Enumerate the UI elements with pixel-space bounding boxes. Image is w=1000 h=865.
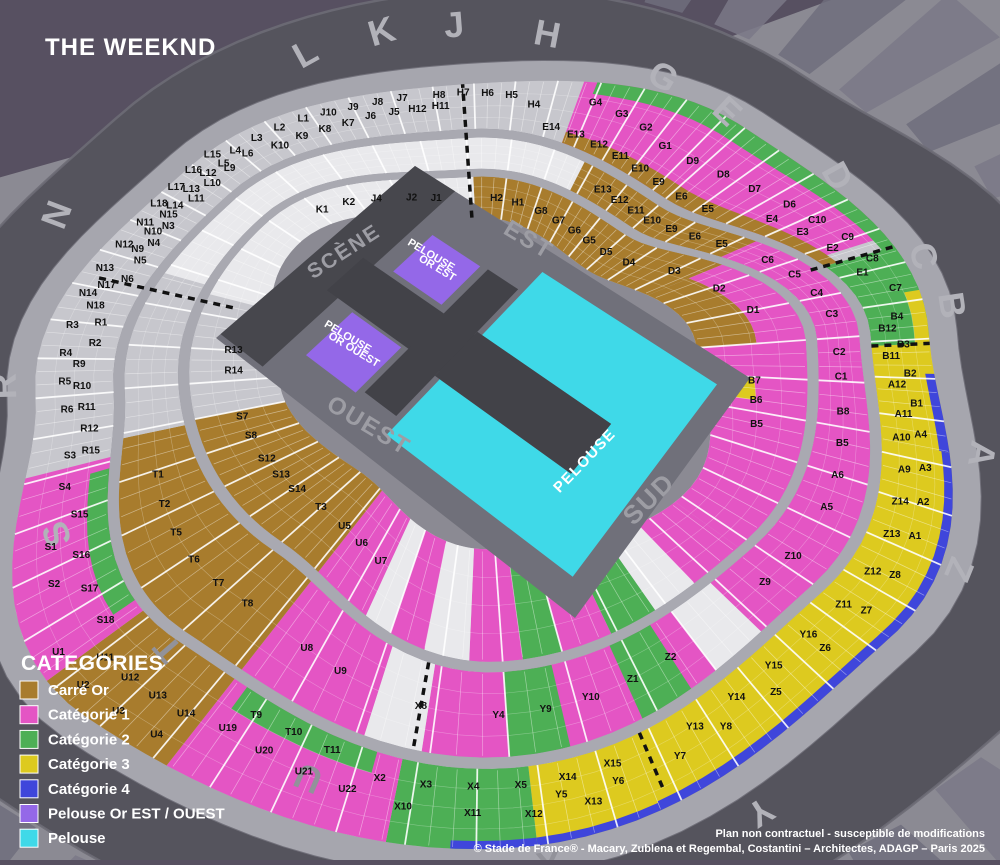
svg-text:D1: D1 xyxy=(747,305,760,316)
svg-text:B12: B12 xyxy=(878,324,897,335)
svg-text:U9: U9 xyxy=(334,666,347,677)
svg-text:K2: K2 xyxy=(342,197,355,208)
svg-text:L6: L6 xyxy=(242,149,254,160)
svg-text:L2: L2 xyxy=(274,123,286,134)
svg-text:X11: X11 xyxy=(464,808,482,819)
svg-text:Y9: Y9 xyxy=(539,704,552,715)
svg-text:E6: E6 xyxy=(689,231,702,242)
svg-text:G8: G8 xyxy=(534,206,548,217)
svg-text:X4: X4 xyxy=(467,781,480,792)
svg-text:T7: T7 xyxy=(213,578,225,589)
svg-text:N9: N9 xyxy=(131,244,144,255)
svg-text:H8: H8 xyxy=(433,90,446,101)
svg-text:E10: E10 xyxy=(631,164,649,175)
svg-text:Pelouse: Pelouse xyxy=(48,830,106,847)
svg-text:Z2: Z2 xyxy=(665,652,677,663)
svg-text:A11: A11 xyxy=(895,409,913,420)
svg-text:C7: C7 xyxy=(889,283,902,294)
svg-text:D9: D9 xyxy=(686,156,699,167)
svg-text:D8: D8 xyxy=(717,169,730,180)
svg-text:X5: X5 xyxy=(515,780,528,791)
svg-text:Y16: Y16 xyxy=(800,629,818,640)
svg-text:B5: B5 xyxy=(750,419,763,430)
svg-text:Z13: Z13 xyxy=(883,529,901,540)
svg-text:E1: E1 xyxy=(856,267,869,278)
svg-text:Y5: Y5 xyxy=(555,790,568,801)
svg-text:H11: H11 xyxy=(432,101,450,112)
svg-text:D2: D2 xyxy=(713,284,726,295)
svg-text:Y15: Y15 xyxy=(765,661,783,672)
svg-text:R10: R10 xyxy=(73,381,92,392)
svg-text:J9: J9 xyxy=(347,102,359,113)
svg-text:T3: T3 xyxy=(315,502,327,513)
svg-text:R12: R12 xyxy=(80,424,99,435)
svg-text:Z7: Z7 xyxy=(861,606,873,617)
svg-text:S12: S12 xyxy=(258,454,276,465)
svg-text:U7: U7 xyxy=(375,556,388,567)
svg-text:Z1: Z1 xyxy=(627,674,639,685)
svg-text:E2: E2 xyxy=(826,243,839,254)
svg-text:E5: E5 xyxy=(716,239,729,250)
svg-text:L14: L14 xyxy=(166,200,184,211)
svg-text:K1: K1 xyxy=(316,204,329,215)
svg-text:A12: A12 xyxy=(888,379,907,390)
svg-text:R4: R4 xyxy=(59,348,72,359)
svg-text:E13: E13 xyxy=(567,130,585,141)
svg-text:Y6: Y6 xyxy=(612,776,625,787)
svg-text:Catégorie 1: Catégorie 1 xyxy=(48,707,130,724)
svg-text:N5: N5 xyxy=(134,256,147,267)
svg-text:R3: R3 xyxy=(66,320,79,331)
svg-text:U6: U6 xyxy=(355,538,368,549)
svg-text:T1: T1 xyxy=(152,470,164,481)
svg-text:B2: B2 xyxy=(904,368,917,379)
svg-text:T9: T9 xyxy=(250,710,262,721)
svg-text:U19: U19 xyxy=(219,723,238,734)
svg-text:N18: N18 xyxy=(86,300,105,311)
svg-text:Z6: Z6 xyxy=(819,643,831,654)
svg-text:E9: E9 xyxy=(665,224,678,235)
svg-text:C5: C5 xyxy=(788,270,801,281)
svg-text:Y14: Y14 xyxy=(728,692,746,703)
svg-text:G7: G7 xyxy=(552,215,566,226)
svg-text:D7: D7 xyxy=(748,184,761,195)
svg-text:T10: T10 xyxy=(285,727,303,738)
svg-text:E11: E11 xyxy=(612,151,630,162)
svg-text:D6: D6 xyxy=(783,199,796,210)
svg-text:Carré Or: Carré Or xyxy=(48,682,109,699)
svg-text:Y10: Y10 xyxy=(582,692,600,703)
svg-text:Y7: Y7 xyxy=(674,751,687,762)
svg-text:T2: T2 xyxy=(159,499,171,510)
svg-text:U20: U20 xyxy=(255,746,274,757)
svg-text:Pelouse Or EST / OUEST: Pelouse Or EST / OUEST xyxy=(48,806,225,823)
svg-text:T8: T8 xyxy=(242,599,254,610)
svg-text:A2: A2 xyxy=(917,497,930,508)
svg-text:S13: S13 xyxy=(272,469,290,480)
svg-text:L3: L3 xyxy=(251,133,263,144)
svg-text:J4: J4 xyxy=(371,193,383,204)
svg-text:Y4: Y4 xyxy=(492,710,505,721)
svg-text:B4: B4 xyxy=(891,312,904,323)
svg-text:S2: S2 xyxy=(48,579,61,590)
svg-text:S7: S7 xyxy=(236,412,249,423)
svg-text:U13: U13 xyxy=(149,691,168,702)
svg-text:K8: K8 xyxy=(319,124,332,135)
svg-text:J2: J2 xyxy=(406,193,418,204)
svg-text:C1: C1 xyxy=(835,372,848,383)
svg-text:X10: X10 xyxy=(394,801,412,812)
svg-text:G1: G1 xyxy=(659,141,673,152)
svg-text:C8: C8 xyxy=(866,254,879,265)
svg-text:L5: L5 xyxy=(218,158,230,169)
svg-text:D3: D3 xyxy=(668,266,681,277)
svg-text:R2: R2 xyxy=(89,338,102,349)
svg-text:Catégorie 4: Catégorie 4 xyxy=(48,781,130,798)
svg-text:N3: N3 xyxy=(162,221,175,232)
svg-text:S18: S18 xyxy=(97,615,115,626)
svg-text:R5: R5 xyxy=(58,376,71,387)
svg-text:J8: J8 xyxy=(372,97,384,108)
svg-text:U14: U14 xyxy=(177,708,196,719)
svg-text:H2: H2 xyxy=(490,193,503,204)
svg-text:Z5: Z5 xyxy=(770,687,782,698)
svg-text:R1: R1 xyxy=(95,317,108,328)
svg-text:Y8: Y8 xyxy=(720,722,733,733)
svg-text:J6: J6 xyxy=(365,111,377,122)
svg-text:E4: E4 xyxy=(766,214,779,225)
svg-text:T6: T6 xyxy=(188,555,200,566)
svg-text:S17: S17 xyxy=(81,584,99,595)
svg-text:X13: X13 xyxy=(585,797,603,808)
svg-text:C9: C9 xyxy=(841,232,854,243)
svg-text:T11: T11 xyxy=(324,745,341,756)
svg-text:C3: C3 xyxy=(825,309,838,320)
svg-text:G4: G4 xyxy=(589,98,603,109)
svg-text:N4: N4 xyxy=(147,238,160,249)
svg-text:H1: H1 xyxy=(512,197,525,208)
svg-text:R6: R6 xyxy=(61,404,74,415)
svg-text:E3: E3 xyxy=(796,227,809,238)
svg-text:Z9: Z9 xyxy=(759,577,771,588)
svg-text:Catégorie 3: Catégorie 3 xyxy=(48,756,130,773)
svg-text:L11: L11 xyxy=(188,194,205,205)
svg-text:K7: K7 xyxy=(342,118,355,129)
svg-text:E9: E9 xyxy=(652,177,665,188)
svg-text:Plan non contractuel - suscept: Plan non contractuel - susceptible de mo… xyxy=(715,828,985,840)
svg-text:J1: J1 xyxy=(431,193,443,204)
svg-text:X2: X2 xyxy=(374,773,387,784)
svg-text:CATEGORIES: CATEGORIES xyxy=(21,652,163,675)
svg-text:H6: H6 xyxy=(481,88,494,99)
svg-text:H12: H12 xyxy=(408,104,427,115)
svg-text:L10: L10 xyxy=(204,178,222,189)
svg-text:U21: U21 xyxy=(295,767,314,778)
svg-text:S3: S3 xyxy=(64,450,77,461)
svg-text:U22: U22 xyxy=(338,784,357,795)
svg-text:© Stade de France® - Macary, Z: © Stade de France® - Macary, Zublena et … xyxy=(474,843,985,855)
svg-text:S14: S14 xyxy=(288,484,306,495)
svg-text:S16: S16 xyxy=(72,550,90,561)
svg-text:B8: B8 xyxy=(837,407,850,418)
svg-text:U8: U8 xyxy=(300,643,313,654)
svg-text:Z11: Z11 xyxy=(835,600,852,611)
svg-text:B5: B5 xyxy=(836,438,849,449)
svg-text:B1: B1 xyxy=(910,398,923,409)
svg-text:C10: C10 xyxy=(808,215,827,226)
svg-text:E10: E10 xyxy=(643,216,661,227)
svg-text:X14: X14 xyxy=(559,772,577,783)
svg-text:S1: S1 xyxy=(45,542,58,553)
svg-text:R9: R9 xyxy=(73,359,86,370)
svg-text:A3: A3 xyxy=(919,463,932,474)
svg-text:U5: U5 xyxy=(338,521,351,532)
svg-text:U4: U4 xyxy=(150,730,163,741)
svg-text:Y13: Y13 xyxy=(686,722,704,733)
svg-text:B11: B11 xyxy=(882,351,900,362)
svg-text:L4: L4 xyxy=(229,145,241,156)
svg-text:G3: G3 xyxy=(615,109,629,120)
svg-text:R13: R13 xyxy=(224,345,243,356)
svg-text:G6: G6 xyxy=(568,225,582,236)
svg-text:X3: X3 xyxy=(420,780,433,791)
svg-text:B6: B6 xyxy=(750,395,763,406)
svg-text:X12: X12 xyxy=(525,809,543,820)
svg-text:A9: A9 xyxy=(898,465,911,476)
svg-text:E14: E14 xyxy=(542,122,560,133)
svg-text:R14: R14 xyxy=(224,366,243,377)
svg-text:K9: K9 xyxy=(296,131,309,142)
svg-text:C6: C6 xyxy=(761,255,774,266)
svg-text:S8: S8 xyxy=(245,430,258,441)
svg-text:C4: C4 xyxy=(810,288,823,299)
svg-text:N10: N10 xyxy=(144,226,163,237)
svg-text:H5: H5 xyxy=(505,90,518,101)
svg-text:S4: S4 xyxy=(59,482,72,493)
svg-text:E12: E12 xyxy=(611,195,629,206)
svg-text:Z14: Z14 xyxy=(892,497,910,508)
svg-text:N13: N13 xyxy=(96,263,115,274)
svg-text:A5: A5 xyxy=(820,502,833,513)
svg-text:J10: J10 xyxy=(320,108,337,119)
svg-text:R: R xyxy=(0,373,24,400)
svg-text:G5: G5 xyxy=(583,236,597,247)
svg-text:E6: E6 xyxy=(675,191,688,202)
svg-text:R11: R11 xyxy=(78,402,96,413)
svg-text:THE WEEKND: THE WEEKND xyxy=(45,34,216,61)
svg-text:A1: A1 xyxy=(909,531,922,542)
svg-text:D4: D4 xyxy=(623,258,636,269)
svg-text:X15: X15 xyxy=(604,758,622,769)
svg-text:Z10: Z10 xyxy=(784,551,802,562)
svg-text:J5: J5 xyxy=(388,107,400,118)
svg-text:Catégorie 2: Catégorie 2 xyxy=(48,731,130,748)
svg-text:L1: L1 xyxy=(297,114,309,125)
svg-text:N14: N14 xyxy=(79,288,98,299)
svg-text:C2: C2 xyxy=(833,347,846,358)
svg-text:H4: H4 xyxy=(528,100,541,111)
svg-text:J7: J7 xyxy=(397,93,409,104)
svg-text:R15: R15 xyxy=(82,446,101,457)
svg-text:Z12: Z12 xyxy=(864,567,882,578)
svg-text:A4: A4 xyxy=(914,430,927,441)
svg-text:D5: D5 xyxy=(600,247,613,258)
svg-text:E13: E13 xyxy=(594,185,612,196)
svg-text:E12: E12 xyxy=(590,140,608,151)
svg-text:A10: A10 xyxy=(892,433,911,444)
svg-text:S15: S15 xyxy=(71,509,89,520)
svg-text:A6: A6 xyxy=(831,470,844,481)
svg-text:J: J xyxy=(442,3,465,45)
svg-text:Z8: Z8 xyxy=(889,570,901,581)
svg-text:E5: E5 xyxy=(702,204,715,215)
svg-text:B7: B7 xyxy=(748,376,761,387)
svg-text:K10: K10 xyxy=(271,140,290,151)
svg-text:G2: G2 xyxy=(639,123,653,134)
svg-text:T5: T5 xyxy=(170,528,182,539)
